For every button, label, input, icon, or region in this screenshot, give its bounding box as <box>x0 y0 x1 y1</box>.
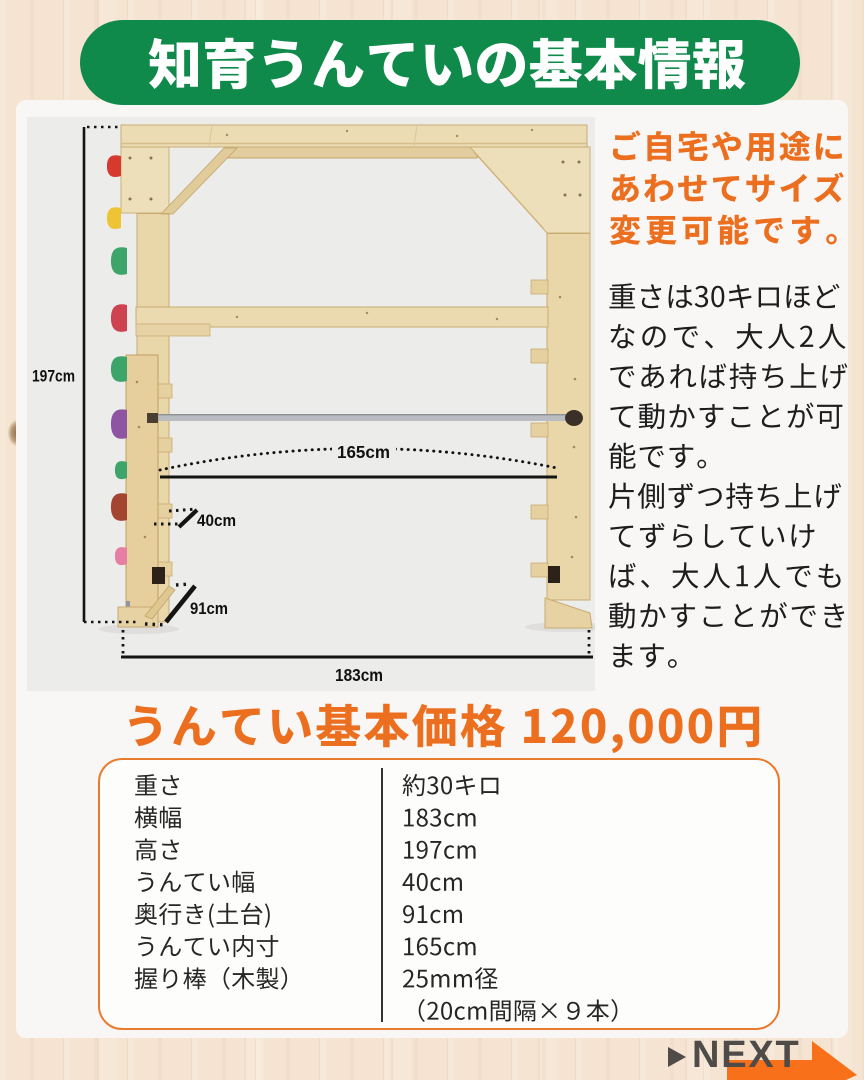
svg-text:165cm: 165cm <box>337 442 390 462</box>
svg-text:183cm: 183cm <box>335 665 383 685</box>
svg-text:197cm: 197cm <box>32 367 75 386</box>
svg-text:40cm: 40cm <box>197 511 236 530</box>
svg-text:91cm: 91cm <box>190 599 228 618</box>
